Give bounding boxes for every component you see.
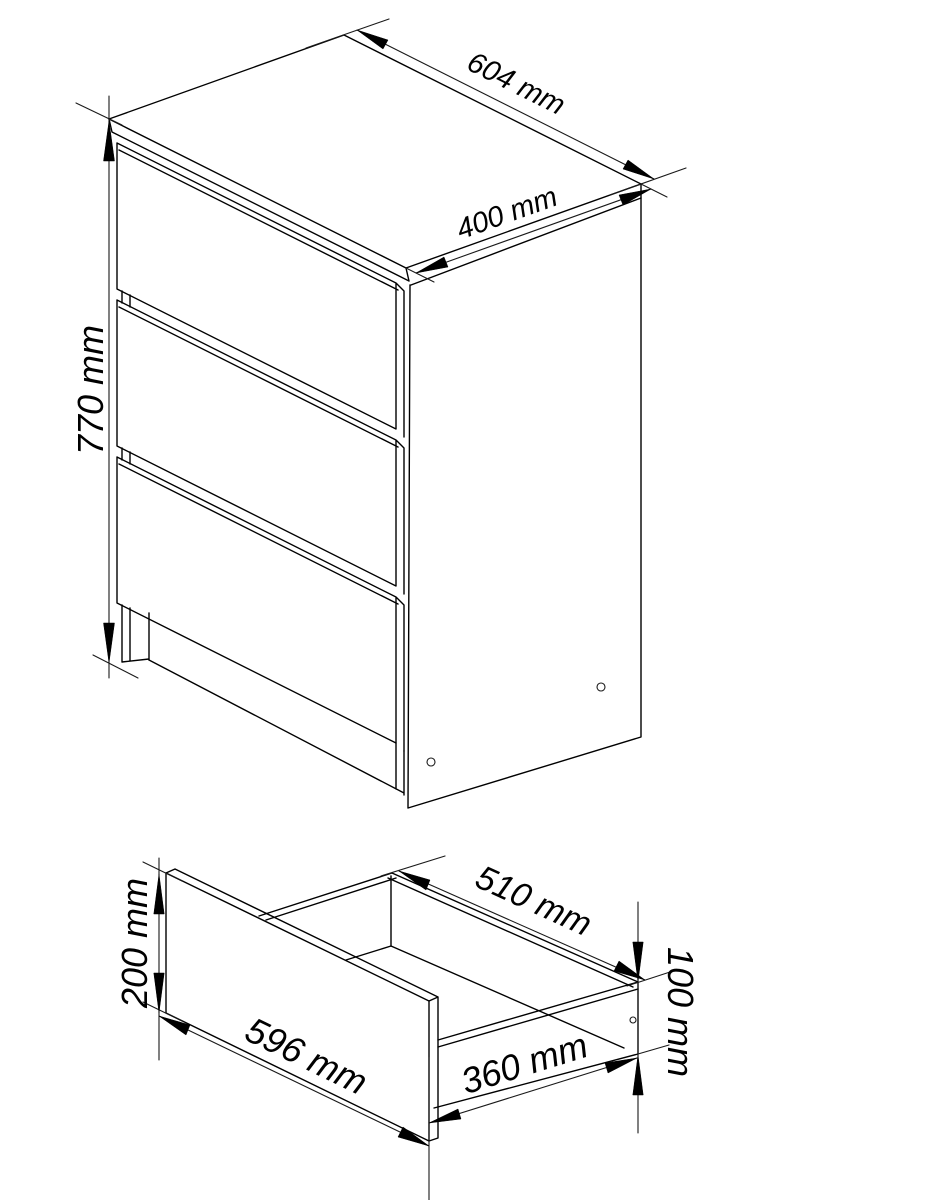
cabinet-drawing: 770 mm 604 mm 400 mm	[70, 19, 686, 808]
drawer-front-panel	[166, 873, 429, 1141]
drawer-side-height-label: 100 mm	[660, 947, 701, 1077]
drawer-drawing: 200 mm 596 mm 510 mm 360 mm	[114, 856, 701, 1200]
drawer-gap-notches	[122, 291, 130, 464]
technical-drawing: 770 mm 604 mm 400 mm	[0, 0, 937, 1200]
cabinet-side-panel	[408, 198, 641, 808]
drawer-left-wall	[259, 873, 396, 920]
drawer-width-label: 596 mm	[239, 1009, 374, 1103]
cabinet-width-dimension: 604 mm	[306, 19, 686, 195]
cabinet-depth-label: 400 mm	[452, 181, 561, 246]
cabinet-top-face	[109, 35, 641, 268]
drawer-front-2	[117, 300, 404, 594]
drawer-height-label: 200 mm	[114, 878, 155, 1009]
drawing-sheet: 770 mm 604 mm 400 mm	[0, 0, 937, 1200]
cabinet-height-label: 770 mm	[70, 325, 111, 455]
drawer-side-hole	[630, 1017, 636, 1023]
drawer-front-panel-thickness	[166, 869, 438, 1141]
cabinet-height-dimension: 770 mm	[70, 96, 138, 678]
drawer-front-1	[117, 143, 404, 437]
cabinet-base-leg	[122, 605, 149, 662]
cabinet-depth-dimension: 400 mm	[406, 181, 667, 282]
drawer-inner-width-dimension: 510 mm	[381, 856, 670, 986]
drawer-front-3	[117, 457, 404, 751]
side-panel-hole-1	[427, 758, 435, 766]
drawer-height-dimension: 200 mm	[114, 858, 182, 1060]
drawer-side-height-dimension: 100 mm	[633, 902, 701, 1133]
side-panel-hole-2	[597, 683, 605, 691]
drawer-width-dimension: 596 mm	[159, 1009, 429, 1200]
